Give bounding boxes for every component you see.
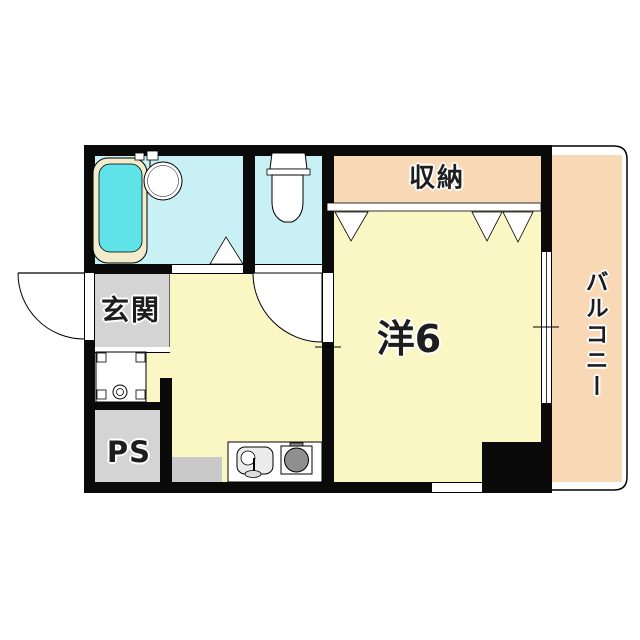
label-entrance: 玄関 [101,295,161,324]
label-closet: 収納 [409,165,465,192]
floor-plan: 収納 洋6 玄関 PS バルコニー [0,0,640,640]
wall-right-upper [541,145,552,252]
wall-divider-upper [322,156,334,274]
room-door-opening [322,273,334,342]
bottom-window [432,482,482,493]
wall-top [84,145,552,156]
wall-bath-bottom [95,264,172,274]
wall-bath-toilet [243,156,255,274]
entrance-step [95,347,170,353]
wall-bottom [84,482,432,493]
bath-door-opening [172,264,243,274]
label-pipe-space: PS [107,437,151,467]
entrance-door-opening [84,273,95,340]
room-bathroom-floor [95,156,243,264]
label-main-room: 洋6 [377,320,441,360]
entrance-door-arc [18,273,84,339]
wall-right-mid [541,403,552,442]
kitchen-step [172,457,222,482]
wall-pillar [482,442,552,493]
balcony-window [541,252,552,403]
wall-left-upper [84,145,95,273]
wall-divider-lower [322,342,334,482]
toilet-door-opening [255,264,322,274]
room-toilet-floor [255,156,322,264]
wall-washer-bottom [84,402,172,410]
label-balcony: バルコニー [582,270,606,400]
wall-left-lower [84,340,95,493]
wall-ps-stub [160,378,172,482]
